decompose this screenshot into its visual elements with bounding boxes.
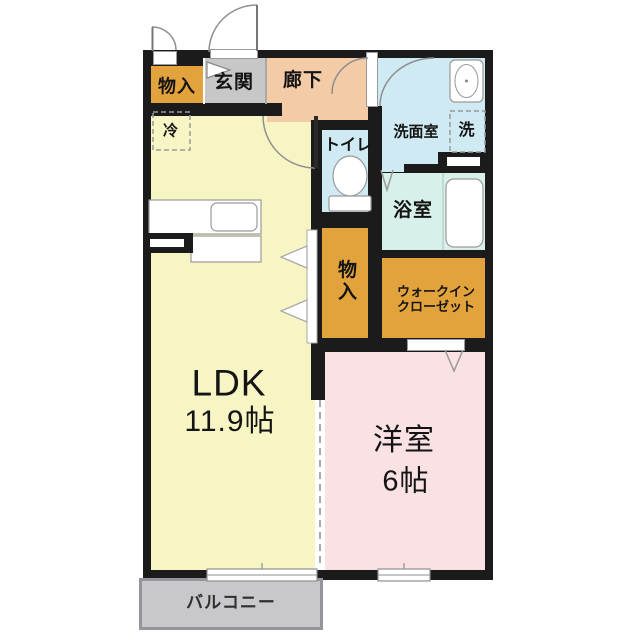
label-storage-mid: 物 入: [338, 260, 358, 304]
room-ldk-area: [151, 106, 315, 570]
label-storage-mid-line1: 物: [338, 260, 358, 282]
label-ldk-name: LDK: [192, 363, 267, 406]
label-refrigerator: 冷: [163, 122, 179, 139]
label-bathroom: 浴室: [393, 200, 433, 222]
entrance-door-gap: [210, 49, 258, 59]
label-western-name: 洋室: [373, 424, 435, 459]
label-hallway: 廊下: [283, 70, 323, 92]
label-storage-top: 物入: [158, 77, 196, 98]
wic-door-gap: [407, 339, 465, 351]
label-washroom: 洗面室: [393, 123, 438, 140]
small-door-threshold: [153, 51, 177, 65]
wall-below-entrance: [143, 103, 282, 116]
label-wic-line2: クローゼット: [397, 300, 475, 315]
wall-ldk-western-stub: [311, 345, 325, 400]
storage-exterior-door-arc: [152, 27, 176, 50]
wall-toilet-left: [311, 120, 322, 345]
wall-toilet-bottom: [311, 212, 382, 228]
label-entrance: 玄関: [214, 72, 254, 94]
floor-plan: 物入 玄関 廊下 冷 トイレ 洗面室 洗 浴室 物 入 ウォークイン クローゼッ…: [0, 0, 640, 640]
label-ldk-size: 11.9帖: [184, 405, 275, 440]
entrance-door-arc: [209, 5, 257, 52]
washer-block-slot: [447, 157, 480, 166]
wall-western-top: [315, 338, 493, 352]
hallway-door-leaf: [366, 52, 378, 107]
label-wic: ウォークイン クローゼット: [397, 285, 475, 315]
label-western-size: 6帖: [382, 465, 429, 498]
label-balcony: バルコニー: [186, 593, 276, 613]
label-washer: 洗: [458, 122, 475, 140]
room-western-area: [325, 352, 485, 570]
label-toilet: トイレ: [324, 137, 372, 155]
wall-bath-bottom: [370, 250, 493, 258]
label-wic-line1: ウォークイン: [397, 285, 475, 300]
label-storage-mid-line2: 入: [338, 282, 358, 304]
